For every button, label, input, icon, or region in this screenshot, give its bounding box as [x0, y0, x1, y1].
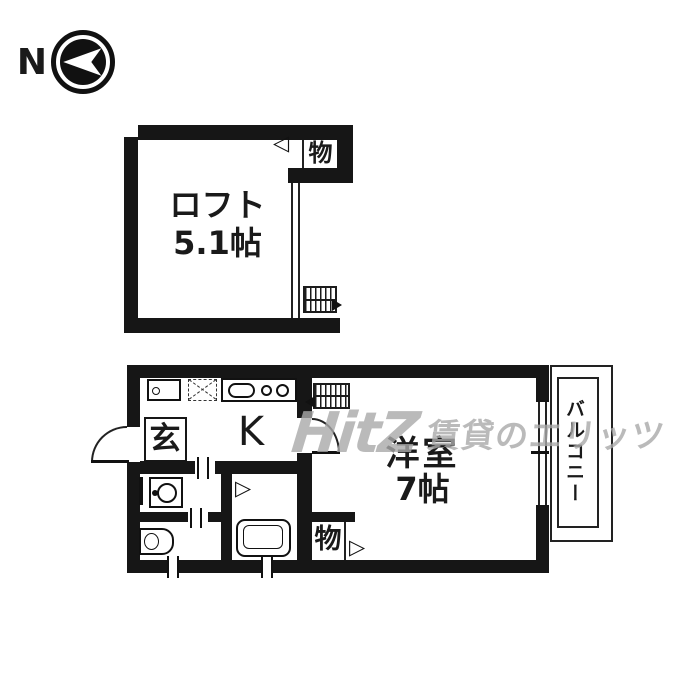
- storage-label: 物: [312, 526, 344, 554]
- loft-wall-left: [124, 137, 138, 333]
- loft-closet-label: 物: [304, 141, 337, 166]
- main-wall-bottom: [127, 560, 549, 573]
- kitchen-sink-icon: [147, 379, 181, 401]
- toilet-door-ticks: [190, 508, 202, 528]
- hall-door-ticks: [197, 457, 209, 479]
- loft-name-label: ロフト: [150, 189, 285, 223]
- loft-ladder-arrow-icon: [332, 299, 342, 311]
- compass-arrow: [60, 39, 106, 85]
- balcony-label: バルコニー: [563, 386, 583, 516]
- bath-window-ticks: [261, 556, 273, 578]
- entrance-door-arc: [91, 426, 127, 462]
- entrance-label: 玄: [146, 423, 184, 456]
- appliance-space-icon: [188, 379, 217, 401]
- room-label: 洋室: [365, 437, 480, 473]
- toilet-window-ticks: [167, 556, 179, 578]
- storage-door-arrow-icon: ▷: [349, 537, 365, 558]
- wash-bath-divider: [221, 474, 232, 560]
- loft-closet: 物: [302, 140, 337, 168]
- storage-wall-top: [297, 512, 355, 522]
- entrance-box: 玄: [144, 417, 187, 462]
- room-ladder-icon: [313, 383, 350, 409]
- bathtub-icon: [236, 519, 291, 557]
- main-wall-right-lower: [536, 505, 549, 573]
- loft-closet-wall-right: [337, 140, 353, 170]
- compass-icon: [51, 30, 115, 94]
- room-door-arc: [312, 418, 340, 453]
- loft-size-label: 5.1帖: [150, 227, 285, 261]
- washbasin-icon: [149, 477, 183, 508]
- kitchen-label: K: [231, 411, 271, 453]
- room-ladder-arrow-icon: [305, 396, 315, 408]
- loft-wall-bottom: [124, 318, 340, 333]
- main-wall-top: [127, 365, 549, 378]
- toilet-icon: [139, 528, 174, 555]
- bath-door-arrow-icon: ▷: [235, 478, 251, 499]
- toilet-wall-top-right: [208, 512, 221, 522]
- loft-wall-top: [138, 125, 353, 140]
- toilet-wall-top-left: [140, 512, 188, 522]
- storage-box: 物: [312, 522, 346, 560]
- loft-closet-wall-bottom: [288, 168, 353, 183]
- main-wall-left-upper: [127, 365, 140, 427]
- kitchen-room-divider-lower: [297, 453, 312, 560]
- floor-plan: N 物 ◁ ロフト 5.1帖 バルコニー: [0, 0, 700, 700]
- loft-partition: [291, 183, 300, 318]
- room-door-leaf: [312, 451, 340, 454]
- window-tick: [531, 451, 549, 454]
- balcony-window: [538, 402, 547, 505]
- main-wall-right-upper: [536, 365, 549, 402]
- hall-wall-right: [215, 461, 297, 474]
- north-label: N: [14, 44, 50, 82]
- washroom-door-stub: [139, 477, 143, 505]
- stove-counter-icon: [221, 378, 297, 402]
- room-size-label: 7帖: [365, 473, 480, 507]
- hall-wall-left: [140, 461, 195, 474]
- entrance-door-leaf: [91, 460, 129, 463]
- loft-closet-door-arrow-icon: ◁: [273, 133, 289, 154]
